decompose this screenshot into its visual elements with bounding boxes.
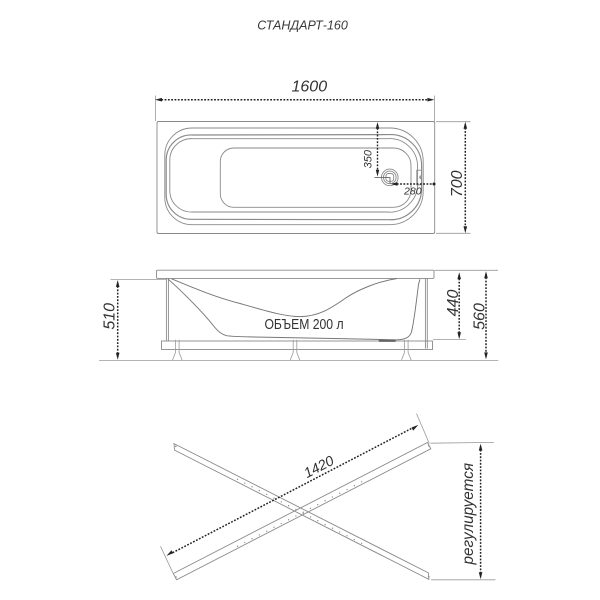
svg-text:1600: 1600 [292, 79, 328, 96]
svg-text:510: 510 [102, 303, 119, 330]
svg-text:700: 700 [449, 170, 466, 197]
svg-text:СТАНДАРТ-160: СТАНДАРТ-160 [257, 18, 348, 32]
svg-text:350: 350 [363, 149, 375, 168]
svg-text:280: 280 [403, 186, 422, 198]
svg-text:ОБЪЕМ 200 л: ОБЪЕМ 200 л [264, 316, 343, 332]
svg-text:440: 440 [445, 290, 462, 317]
svg-text:560: 560 [472, 303, 489, 330]
svg-text:регулируется: регулируется [460, 463, 477, 566]
